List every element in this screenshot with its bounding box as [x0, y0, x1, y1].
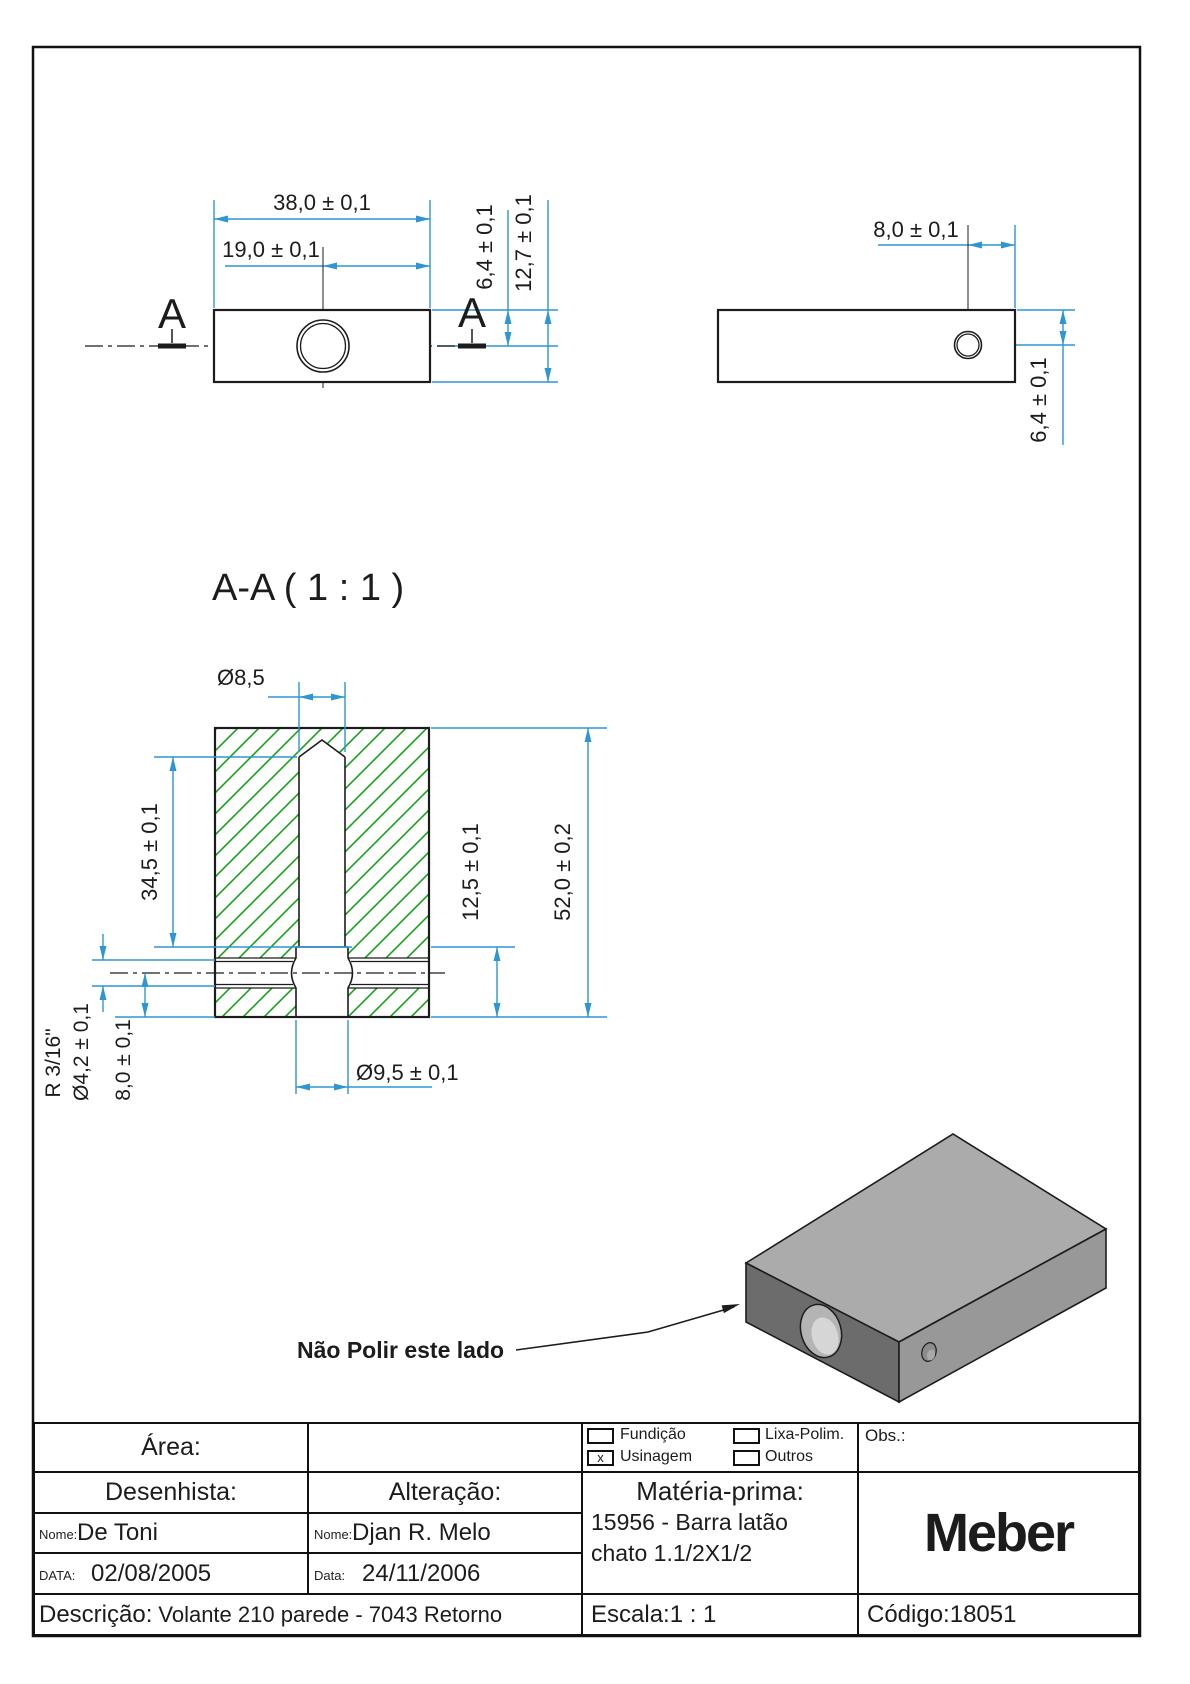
side-view: 8,0 ± 0,1 6,4 ± 0,1 — [718, 217, 1075, 445]
desenhista-label: Desenhista: — [105, 1478, 237, 1507]
dim-cbore-dia: Ø9,5 ± 0,1 — [356, 1060, 459, 1085]
data-cell: DATA: 02/08/2005 — [35, 1554, 307, 1593]
alt-nome-value: Djan R. Melo — [352, 1519, 491, 1547]
data-label: DATA: — [39, 1568, 75, 1583]
section-view: A-A ( 1 : 1 ) — [42, 567, 607, 1101]
dim-cross-pos: 8,0 ± 0,1 — [112, 1019, 135, 1101]
checkbox-lixa[interactable] — [733, 1428, 760, 1444]
desenhista-cell: Desenhista: — [35, 1473, 307, 1512]
escala-cell: Escala: 1 : 1 — [583, 1595, 857, 1634]
side-view-outline — [718, 310, 1015, 382]
nome-cell: Nome: De Toni — [35, 1514, 307, 1552]
alt-data-label: Data: — [314, 1568, 345, 1583]
dim-hole-y-64: 6,4 ± 0,1 — [472, 204, 497, 289]
nome-label: Nome: — [39, 1527, 77, 1542]
escala-value: 1 : 1 — [670, 1601, 717, 1629]
checkbox-fundicao[interactable] — [587, 1428, 614, 1444]
iso-view: Não Polir este lado — [297, 1134, 1106, 1402]
logo-cell: Meber — [859, 1473, 1138, 1593]
checkbox-usinagem-label: Usinagem — [620, 1448, 692, 1466]
codigo-value: 18051 — [950, 1601, 1017, 1629]
escala-label: Escala: — [591, 1601, 670, 1629]
title-block: Área: Fundição Lixa-Polim. x Usinagem Ou… — [33, 1422, 1140, 1636]
section-title: A-A ( 1 : 1 ) — [212, 567, 404, 609]
descricao-label: Descrição: — [39, 1601, 152, 1629]
alt-nome-label: Nome: — [314, 1527, 352, 1542]
sheet-border — [33, 47, 1140, 1636]
note-leader-arrow — [722, 1304, 740, 1313]
area-cell: Área: — [35, 1424, 307, 1471]
dim-cross-dia: Ø4,2 ± 0,1 — [70, 1003, 93, 1101]
codigo-label: Código: — [867, 1601, 950, 1629]
descricao-value: Volante 210 parede - 7043 Retorno — [158, 1602, 502, 1628]
checkbox-outros-label: Outros — [765, 1448, 813, 1466]
checkbox-usinagem[interactable]: x — [587, 1450, 614, 1466]
company-logo: Meber — [924, 1502, 1073, 1564]
checkbox-lixa-label: Lixa-Polim. — [765, 1426, 844, 1444]
checkbox-usinagem-mark: x — [597, 1450, 604, 1465]
alteracao-label: Alteração: — [389, 1478, 502, 1507]
codigo-cell: Código: 18051 — [859, 1595, 1138, 1634]
dim-hole-dia: Ø8,5 — [217, 665, 265, 690]
note-text: Não Polir este lado — [297, 1337, 504, 1363]
alt-data-value: 24/11/2006 — [362, 1560, 480, 1588]
dim-cbore-depth: 12,5 ± 0,1 — [458, 823, 483, 921]
data-value: 02/08/2005 — [91, 1560, 211, 1588]
dim-height-127: 12,7 ± 0,1 — [511, 194, 536, 292]
dim-cross-radius: R 3/16" — [42, 1028, 65, 1097]
nome-value: De Toni — [77, 1519, 158, 1547]
alteracao-cell: Alteração: — [309, 1473, 581, 1512]
dim-total-height: 52,0 ± 0,2 — [550, 823, 575, 921]
section-letter-right: A — [458, 289, 486, 336]
note-leader-line — [516, 1307, 734, 1350]
materia-line1: 15956 - Barra latão — [591, 1509, 788, 1536]
drawing-sheet: 38,0 ± 0,1 19,0 ± 0,1 6,4 ± 0,1 12,7 ± 0… — [0, 0, 1190, 1684]
area-label: Área: — [141, 1433, 201, 1462]
dim-hole-x-80: 8,0 ± 0,1 — [873, 217, 958, 242]
materia-cell: Matéria-prima: 15956 - Barra latão chato… — [583, 1473, 857, 1593]
obs-label: Obs.: — [865, 1426, 906, 1446]
dim-center-19: 19,0 ± 0,1 — [222, 237, 320, 262]
alt-nome-cell: Nome: Djan R. Melo — [309, 1514, 581, 1552]
checkbox-outros[interactable] — [733, 1450, 760, 1466]
materia-title: Matéria-prima: — [583, 1476, 857, 1507]
front-view: 38,0 ± 0,1 19,0 ± 0,1 6,4 ± 0,1 12,7 ± 0… — [85, 190, 558, 388]
process-cell: Fundição Lixa-Polim. x Usinagem Outros — [583, 1424, 857, 1471]
checkbox-fundicao-label: Fundição — [620, 1426, 686, 1444]
section-letter-left: A — [158, 290, 186, 337]
materia-line2: chato 1.1/2X1/2 — [591, 1540, 752, 1567]
descricao-cell: Descrição: Volante 210 parede - 7043 Ret… — [35, 1595, 581, 1634]
dim-side-hole-y-64: 6,4 ± 0,1 — [1026, 357, 1051, 442]
obs-cell: Obs.: — [859, 1424, 1138, 1471]
dim-width-38: 38,0 ± 0,1 — [273, 190, 371, 215]
dim-hole-depth: 34,5 ± 0,1 — [137, 803, 162, 901]
alt-data-cell: Data: 24/11/2006 — [309, 1554, 581, 1593]
